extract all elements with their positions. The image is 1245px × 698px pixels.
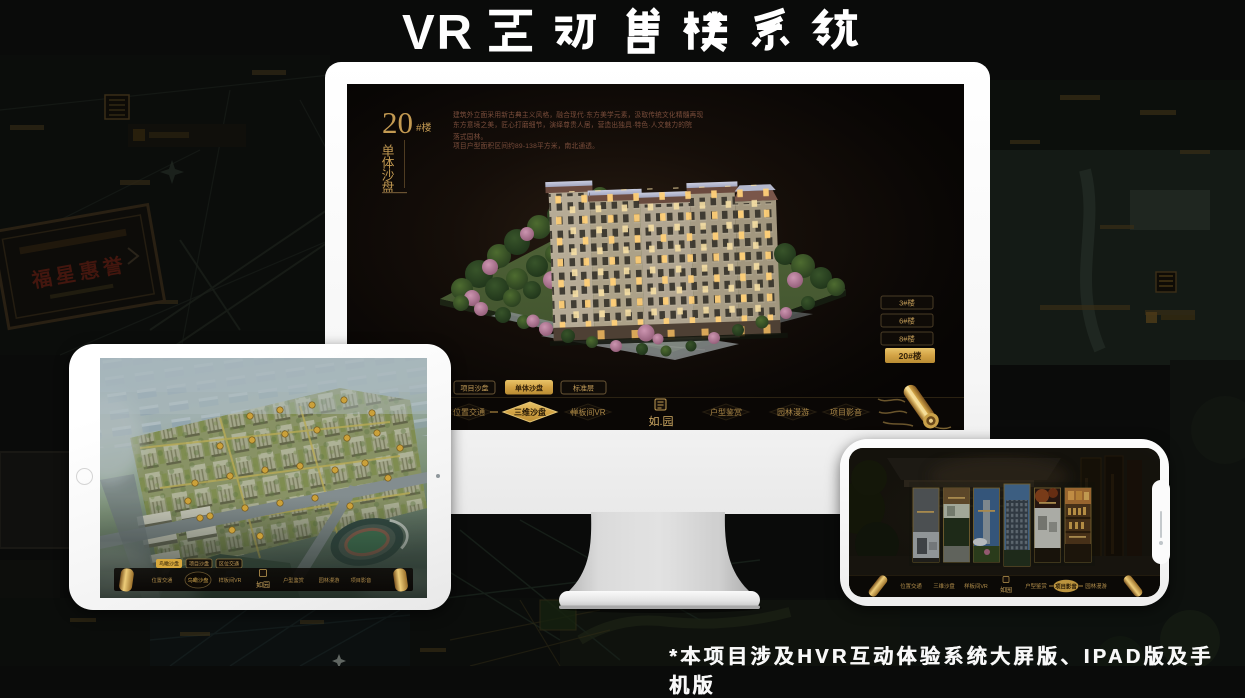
svg-text:落式园林。: 落式园林。	[453, 132, 487, 141]
svg-text:标准层: 标准层	[573, 384, 594, 393]
svg-text:如.园: 如.园	[648, 414, 673, 428]
svg-text:位置交通: 位置交通	[453, 407, 485, 417]
svg-text:样板间VR: 样板间VR	[964, 582, 988, 590]
svg-text:单体沙盘: 单体沙盘	[515, 384, 543, 393]
svg-text:三维沙盘: 三维沙盘	[514, 407, 546, 417]
svg-text:20#楼: 20#楼	[899, 351, 922, 361]
svg-text:如园: 如园	[256, 580, 270, 589]
svg-text:鸟瞰沙盘: 鸟瞰沙盘	[188, 576, 209, 584]
svg-text:样板间VR: 样板间VR	[219, 576, 242, 584]
svg-text:项目影音: 项目影音	[830, 407, 862, 417]
svg-text:3#楼: 3#楼	[899, 298, 915, 308]
svg-text:建筑外立面采用新古典主义风格，融合现代·东方美学元素，汲取传: 建筑外立面采用新古典主义风格，融合现代·东方美学元素，汲取传统文化精髓再现	[453, 110, 703, 119]
svg-text:VR: VR	[402, 6, 474, 58]
svg-text:如园: 如园	[1000, 586, 1012, 594]
svg-text:位置交通: 位置交通	[900, 582, 922, 590]
svg-text:户型鉴赏: 户型鉴赏	[710, 407, 742, 417]
svg-text:户型鉴赏: 户型鉴赏	[1025, 582, 1047, 590]
svg-text:6#楼: 6#楼	[899, 316, 915, 326]
svg-text:鸟瞰沙盘: 鸟瞰沙盘	[159, 561, 179, 568]
svg-text:园林漫游: 园林漫游	[777, 407, 809, 417]
svg-text:三维沙盘: 三维沙盘	[933, 582, 955, 590]
svg-text:位置交通: 位置交通	[152, 576, 174, 584]
svg-text:东方意境之美，匠心打磨细节，演绎尊贵人居，营造出独具·特色·: 东方意境之美，匠心打磨细节，演绎尊贵人居，营造出独具·特色·人文魅力的院	[453, 120, 692, 129]
svg-text:园林漫游: 园林漫游	[319, 576, 340, 584]
svg-text:项目沙盘: 项目沙盘	[189, 561, 209, 568]
svg-text:项目户型面积区间约89-138平方米，南北通透。: 项目户型面积区间约89-138平方米，南北通透。	[453, 141, 599, 150]
svg-text:8#楼: 8#楼	[899, 334, 915, 344]
svg-text:20: 20	[382, 105, 413, 140]
svg-text:项目影音: 项目影音	[351, 576, 372, 584]
svg-text:#楼: #楼	[416, 121, 432, 134]
svg-text:区位交通: 区位交通	[219, 561, 239, 568]
svg-text:项目影音: 项目影音	[1055, 583, 1077, 591]
svg-text:户型鉴赏: 户型鉴赏	[283, 576, 304, 584]
svg-text:园林漫游: 园林漫游	[1085, 582, 1107, 590]
svg-text:项目沙盘: 项目沙盘	[461, 384, 489, 393]
svg-text:单体沙盘: 单体沙盘	[380, 144, 395, 194]
